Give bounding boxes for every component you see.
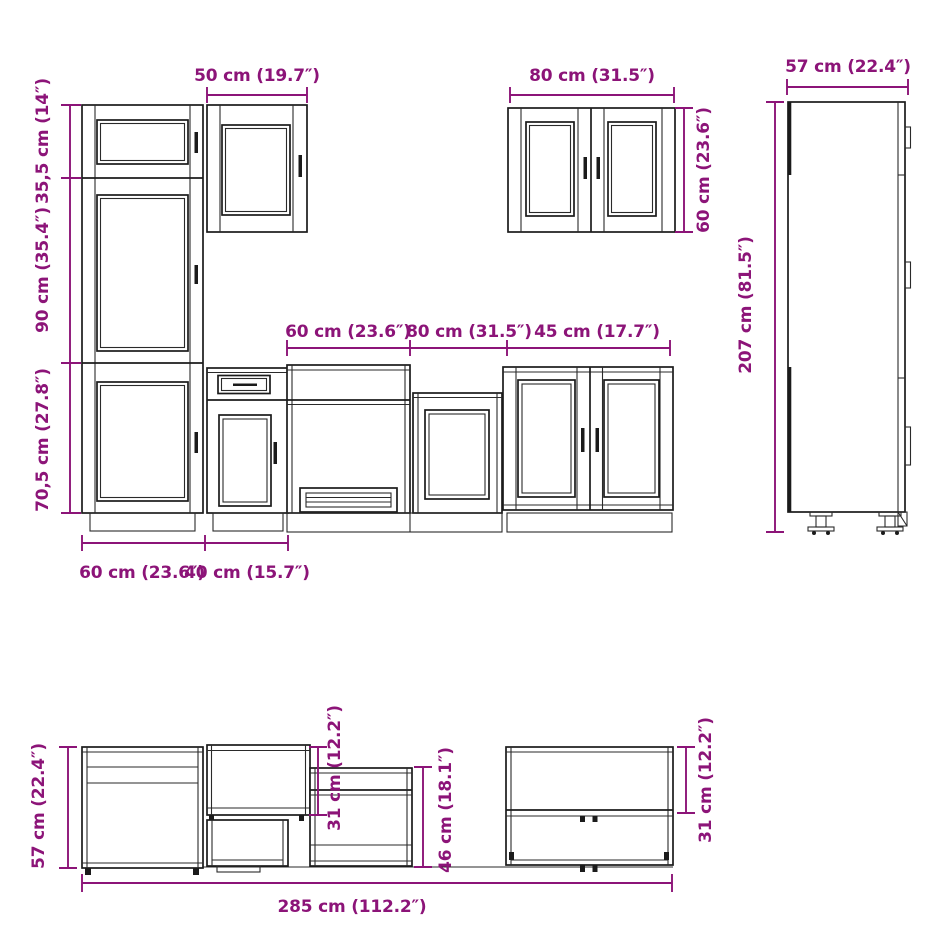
dim-tall-side-height: 207 cm (81.5″) <box>736 102 784 532</box>
mid-cabinet-front <box>413 393 502 513</box>
kitchen-dimensions-diagram: 35,5 cm (14″) 90 cm (35.4″) 70,5 cm (27.… <box>0 0 947 947</box>
wall-cabinet-side-left <box>207 745 310 821</box>
door-handle <box>584 157 588 179</box>
hinge-peg <box>299 815 304 821</box>
tall-cabinet-side <box>788 102 911 535</box>
dim-label-wall-cab-height-right: 31 cm (12.2″) <box>696 717 716 843</box>
dim-label-wall-cab-80-height: 60 cm (23.6″) <box>694 107 714 233</box>
dim-base-cab-height: 57 cm (22.4″) <box>29 743 77 869</box>
foot-peg <box>85 868 91 875</box>
corner-bracket <box>898 512 907 526</box>
dim-tall-heights: 35,5 cm (14″) 90 cm (35.4″) 70,5 cm (27.… <box>33 78 81 513</box>
hinge-peg <box>580 816 585 822</box>
door-handle <box>274 442 278 464</box>
door-handle <box>596 428 600 452</box>
dim-label-tall-mid-height: 90 cm (35.4″) <box>33 207 53 333</box>
dim-total-run-width: 285 cm (112.2″) <box>82 874 672 917</box>
door-handle <box>195 432 199 453</box>
dim-label-mid-unit-height: 46 cm (18.1″) <box>436 747 456 873</box>
dim-label-double-unit-width: 45 cm (17.7″) <box>534 322 660 342</box>
drawer-handle <box>233 384 257 387</box>
cabinet-foot <box>808 512 834 535</box>
dim-label-base-40-width: 40 cm (15.7″) <box>184 563 310 583</box>
dim-wall-cab-80-height: 60 cm (23.6″) <box>675 107 714 233</box>
dim-label-tall-top-height: 35,5 cm (14″) <box>33 78 53 204</box>
dim-label-mid-unit-width: 80 cm (31.5″) <box>406 322 532 342</box>
diagram-canvas: 35,5 cm (14″) 90 cm (35.4″) 70,5 cm (27.… <box>0 0 947 947</box>
dim-label-oven-unit-width: 60 cm (23.6″) <box>285 322 411 342</box>
oven-housing-cabinet-front <box>287 365 410 513</box>
dim-label-base-cab-height: 57 cm (22.4″) <box>29 743 49 869</box>
dim-label-tall-side-height: 207 cm (81.5″) <box>736 236 756 373</box>
under-counter-box-side <box>207 820 288 872</box>
tall-cabinet-front <box>82 105 203 531</box>
foot-peg <box>193 868 199 875</box>
dim-label-wall-cab-80-width: 80 cm (31.5″) <box>529 66 655 86</box>
base-cabinet-40-front <box>207 368 288 531</box>
dim-wall-cab-height-right: 31 cm (12.2″) <box>677 717 716 843</box>
dim-wall-cab-80-width: 80 cm (31.5″) <box>510 66 674 103</box>
double-door-cabinet-front <box>503 367 673 510</box>
door-handle <box>195 132 199 153</box>
plinth-band <box>287 513 672 532</box>
wall-cabinet-80-front <box>508 108 675 232</box>
dim-mid-unit-height: 46 cm (18.1″) <box>414 747 456 873</box>
dim-tall-and-40-widths: 60 cm (23.6″) 40 cm (15.7″) <box>79 535 310 583</box>
dim-label-wall-cab-height-left: 31 cm (12.2″) <box>325 705 345 831</box>
dim-base-row-widths: 60 cm (23.6″) 80 cm (31.5″) 45 cm (17.7″… <box>285 322 670 356</box>
door-handle <box>195 265 199 284</box>
door-handle <box>299 155 303 177</box>
plinth <box>90 513 195 531</box>
wall-and-base-combo-side <box>506 747 673 872</box>
hinge-peg <box>593 816 598 822</box>
wall-cabinet-50-front <box>207 105 307 232</box>
door-handle <box>597 157 601 179</box>
dim-label-total-run-width: 285 cm (112.2″) <box>277 897 426 917</box>
door-handle <box>581 428 585 452</box>
corner-bracket <box>664 852 669 860</box>
dim-label-tall-side-depth: 57 cm (22.4″) <box>785 57 911 77</box>
corner-bracket <box>509 852 514 860</box>
dim-wall-cab-50-width: 50 cm (19.7″) <box>194 66 320 103</box>
cabinet-foot <box>877 512 903 535</box>
plinth <box>213 513 283 531</box>
foot-peg <box>580 865 585 872</box>
foot-peg <box>593 865 598 872</box>
dim-tall-side-depth: 57 cm (22.4″) <box>785 57 911 95</box>
base-cabinet-side <box>82 747 203 875</box>
dim-label-tall-bottom-height: 70,5 cm (27.8″) <box>33 368 53 512</box>
dim-label-wall-cab-50-width: 50 cm (19.7″) <box>194 66 320 86</box>
